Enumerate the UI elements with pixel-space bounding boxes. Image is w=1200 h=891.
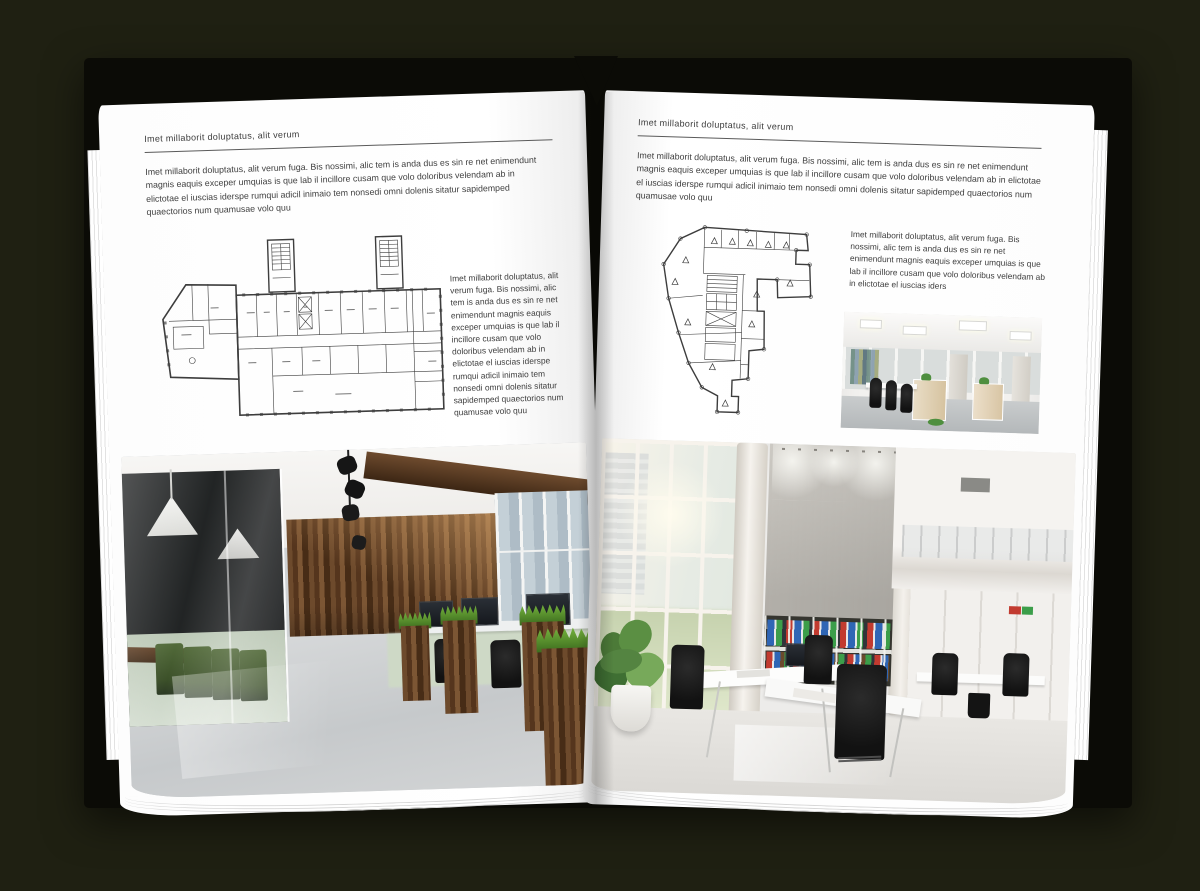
office-chair	[670, 645, 705, 709]
office-chair	[490, 639, 522, 688]
sun-glare	[608, 460, 734, 569]
ceiling-light	[959, 320, 987, 331]
office-chair	[901, 383, 914, 412]
vent-grille	[961, 478, 990, 493]
small-plant	[979, 378, 989, 385]
small-plant	[921, 373, 931, 380]
wood-planter	[443, 620, 478, 713]
safety-sign-red	[1009, 606, 1021, 615]
photo-office-dark-wood	[121, 442, 597, 798]
office-chair	[1002, 653, 1029, 696]
book-mockup-scene: Imet millaborit doluptatus, alit verum I…	[0, 0, 1200, 891]
floor-plan-right	[641, 216, 843, 418]
mezzanine	[891, 447, 1075, 593]
office-chair-foreground	[834, 664, 887, 761]
right-page-header: Imet millaborit doluptatus, alit verum	[638, 117, 794, 132]
left-intro-paragraph: Imet millaborit doluptatus, alit verum f…	[145, 153, 548, 219]
office-chair	[885, 380, 898, 411]
floor-plan-left	[148, 231, 446, 422]
left-page: Imet millaborit doluptatus, alit verum I…	[98, 90, 607, 817]
spotlight	[340, 503, 359, 521]
left-page-header: Imet millaborit doluptatus, alit verum	[144, 129, 300, 144]
left-side-paragraph: Imet millaborit doluptatus, alit verum f…	[450, 269, 568, 419]
ceiling-light	[1010, 331, 1032, 341]
glass-railing	[902, 525, 1074, 562]
wood-cabinet	[912, 379, 947, 421]
plant-pot	[610, 685, 652, 732]
photo-small-office	[841, 312, 1043, 434]
right-intro-paragraph: Imet millaborit doluptatus, alit verum f…	[636, 149, 1045, 215]
office-chair	[803, 635, 833, 685]
ceiling-light	[860, 319, 882, 329]
photo-office-bright	[591, 438, 1076, 805]
right-page: Imet millaborit doluptatus, alit verum I…	[583, 90, 1095, 819]
right-side-paragraph: Imet millaborit doluptatus, alit verum f…	[849, 228, 1047, 295]
waste-bin	[968, 693, 990, 718]
office-chair	[869, 378, 882, 409]
wood-cabinet	[972, 383, 1005, 421]
safety-sign-green	[1022, 606, 1034, 615]
spotlight	[351, 534, 367, 550]
office-chair	[931, 653, 958, 696]
wall-downlights	[771, 444, 896, 504]
right-header-rule	[638, 135, 1042, 149]
ceiling-light	[903, 325, 927, 335]
